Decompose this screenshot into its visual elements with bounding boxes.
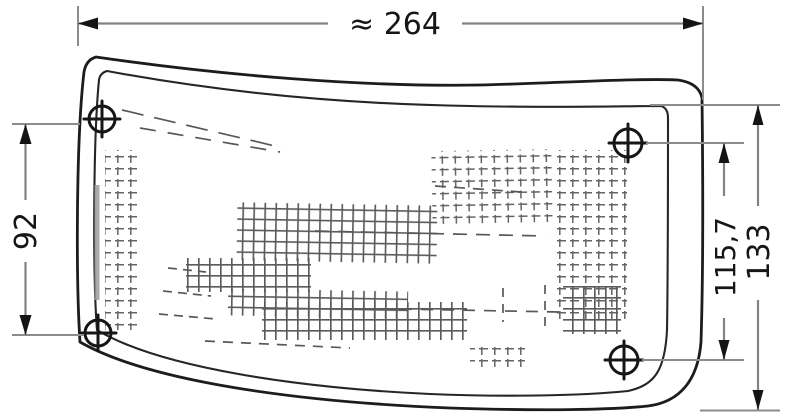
dimension-left-height: 92 xyxy=(9,124,84,335)
arrowhead-down xyxy=(20,315,32,335)
lens-optics-pattern xyxy=(97,110,627,371)
dimension-overall-width: ≈ 264 xyxy=(78,6,703,100)
arrowhead-down xyxy=(719,340,730,360)
left-height-label: 92 xyxy=(9,212,44,250)
optics-patch xyxy=(186,258,311,292)
arrowhead-down xyxy=(753,390,764,410)
right-mount-height-label: 115,7 xyxy=(709,217,742,297)
screw-bottom-right xyxy=(605,341,643,379)
arrowhead-left xyxy=(78,18,98,30)
arrowhead-up xyxy=(753,105,764,125)
arrowhead-up xyxy=(20,124,32,144)
dimension-right-mount-height: 115,7 xyxy=(642,143,744,360)
lamp-dimension-drawing: ≈ 264 92 115,7 133 xyxy=(0,0,800,419)
technical-drawing-page: ≈ 264 92 115,7 133 xyxy=(0,0,800,419)
optics-patch xyxy=(262,302,467,340)
arrowhead-up xyxy=(719,143,730,163)
overall-width-label: ≈ 264 xyxy=(349,7,441,42)
right-overall-height-label: 133 xyxy=(742,223,777,280)
optics-patch xyxy=(563,286,621,334)
screw-top-left xyxy=(84,101,120,137)
optics-patch-bottom-small xyxy=(470,345,525,371)
optics-patch-left-strip xyxy=(105,150,138,330)
optics-patch-right-upper xyxy=(431,149,552,227)
arrowhead-right xyxy=(683,18,703,30)
